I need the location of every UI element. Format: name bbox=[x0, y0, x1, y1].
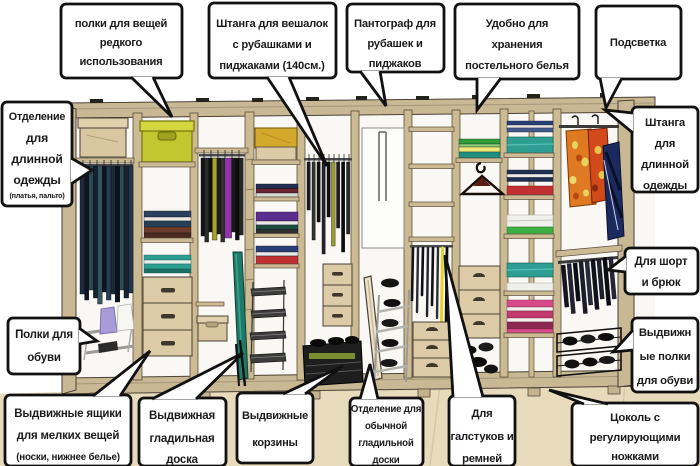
svg-text:доска: доска bbox=[166, 454, 199, 466]
svg-text:для: для bbox=[26, 131, 48, 145]
svg-text:обуви: обуви bbox=[27, 352, 61, 364]
svg-text:постельного белья: постельного белья bbox=[465, 60, 569, 72]
svg-text:ые полки: ые полки bbox=[640, 351, 691, 363]
svg-text:Для: Для bbox=[471, 408, 492, 420]
svg-text:использования: использования bbox=[79, 56, 162, 68]
svg-text:галстуков и: галстуков и bbox=[451, 431, 514, 443]
svg-text:(носки, нижнее белье): (носки, нижнее белье) bbox=[16, 452, 120, 463]
svg-text:регулирующими: регулирующими bbox=[590, 432, 681, 444]
svg-text:Выдвижные: Выдвижные bbox=[242, 410, 308, 422]
svg-text:доски: доски bbox=[372, 455, 399, 466]
svg-text:длинной: длинной bbox=[11, 152, 62, 166]
svg-text:одежды: одежды bbox=[643, 180, 687, 192]
svg-text:Отделение: Отделение bbox=[9, 111, 66, 123]
svg-text:Цоколь с: Цоколь с bbox=[610, 412, 660, 424]
svg-text:Пантограф для: Пантограф для bbox=[354, 18, 436, 30]
svg-text:обычной: обычной bbox=[365, 421, 407, 432]
svg-text:ремней: ремней bbox=[462, 453, 502, 465]
svg-text:Полки для: Полки для bbox=[15, 329, 73, 341]
svg-text:корзины: корзины bbox=[252, 437, 298, 449]
svg-text:(платья, пальто): (платья, пальто) bbox=[9, 191, 65, 200]
svg-text:гладильной: гладильной bbox=[358, 438, 414, 449]
svg-text:редкого: редкого bbox=[100, 37, 143, 49]
svg-text:для: для bbox=[655, 138, 676, 150]
svg-text:Подсветка: Подсветка bbox=[610, 37, 667, 49]
svg-text:для обуви: для обуви bbox=[637, 375, 693, 387]
svg-text:Для шорт: Для шорт bbox=[635, 256, 688, 268]
svg-text:Выдвижная: Выдвижная bbox=[149, 410, 215, 422]
svg-text:и брюк: и брюк bbox=[642, 277, 681, 289]
svg-text:полки для вещей: полки для вещей bbox=[75, 18, 168, 30]
svg-text:пиджаков: пиджаков bbox=[369, 58, 422, 70]
svg-text:длинной: длинной bbox=[641, 159, 689, 171]
svg-text:Удобно для: Удобно для bbox=[486, 18, 549, 30]
svg-text:Отделение для: Отделение для bbox=[351, 404, 421, 415]
svg-text:Штанга: Штанга bbox=[645, 117, 686, 129]
svg-text:Штанга для вешалок: Штанга для вешалок bbox=[216, 18, 328, 30]
svg-text:рубашек и: рубашек и bbox=[367, 38, 423, 50]
svg-text:одежды: одежды bbox=[13, 173, 60, 187]
svg-text:для мелких вещей: для мелких вещей bbox=[17, 430, 120, 442]
svg-text:Выдвижные ящики: Выдвижные ящики bbox=[14, 408, 122, 420]
svg-text:ножками: ножками bbox=[611, 451, 659, 463]
svg-text:гладильная: гладильная bbox=[149, 433, 214, 445]
svg-text:Выдвижн: Выдвижн bbox=[639, 327, 692, 339]
svg-text:с рубашками и: с рубашками и bbox=[232, 39, 311, 51]
svg-text:пиджаками (140см.): пиджаками (140см.) bbox=[219, 60, 325, 72]
svg-text:хранения: хранения bbox=[492, 39, 543, 51]
